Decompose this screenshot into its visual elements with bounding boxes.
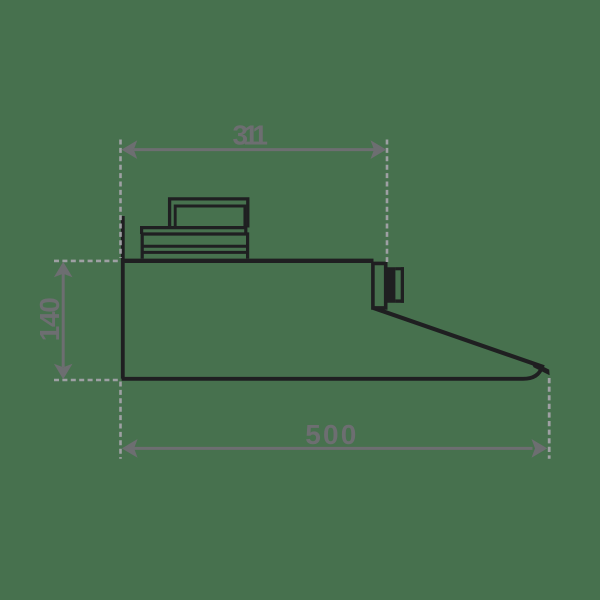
svg-text:140: 140 [34, 298, 65, 342]
svg-text:311: 311 [232, 120, 267, 151]
svg-text:500: 500 [305, 419, 358, 450]
